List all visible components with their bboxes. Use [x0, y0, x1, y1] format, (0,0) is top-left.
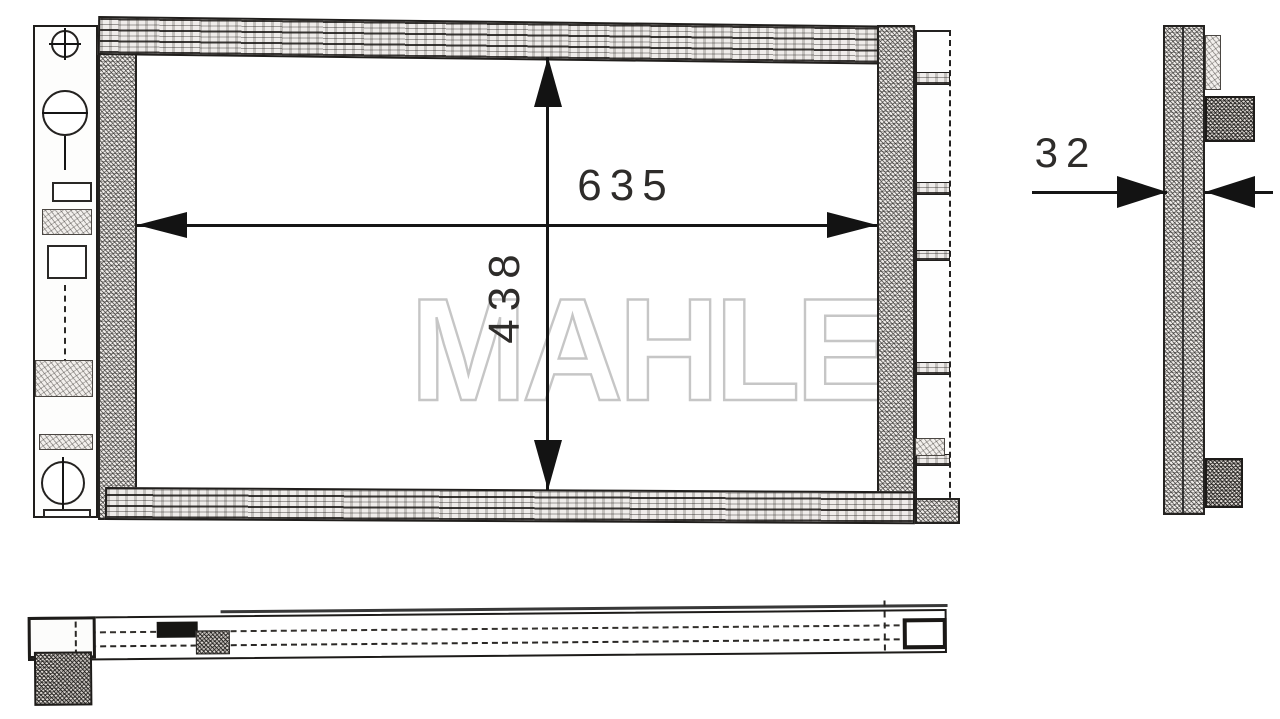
left-tank — [33, 25, 98, 518]
cap-cross-horizontal — [49, 43, 81, 45]
dim-depth-label: 32 — [1026, 132, 1106, 174]
core-left-edge — [98, 20, 137, 520]
technical-drawing-scene: MAHLE — [0, 0, 1280, 719]
core-top-bar — [98, 16, 915, 65]
neck-stem-line — [64, 136, 66, 170]
right-tank-divider-4 — [916, 362, 950, 375]
dim-width-arrow-right-icon — [827, 212, 877, 238]
front-right-fitting — [915, 438, 945, 456]
dim-height-arrow-down-icon — [534, 440, 562, 490]
dim-depth-arrow-right-icon — [1117, 176, 1167, 208]
tank-segment-b — [42, 209, 92, 235]
dim-depth-arrow-left-icon — [1205, 176, 1255, 208]
side-bottom-foot — [1205, 458, 1243, 508]
front-mount-foot — [915, 498, 960, 524]
dim-height-line — [546, 57, 549, 490]
dim-width-label: 635 — [566, 164, 686, 208]
bottom-center-dash — [884, 600, 886, 650]
right-tank-divider-1 — [916, 72, 950, 85]
bottom-outlet-stub — [34, 651, 92, 706]
tank-segment-a — [52, 182, 92, 202]
left-block-dash — [75, 622, 77, 656]
tank-segment-c — [47, 245, 87, 279]
bottom-circle-line — [62, 457, 64, 509]
neck-diameter-line — [42, 112, 88, 114]
bottom-view — [26, 598, 957, 716]
bottom-strip-line-2 — [40, 638, 930, 648]
right-tank-divider-2 — [916, 182, 950, 195]
side-center-line — [1182, 27, 1184, 513]
side-core-strip — [1163, 25, 1205, 515]
side-top-lug — [1205, 35, 1221, 90]
side-view — [1160, 22, 1270, 518]
bottom-right-end-cap — [903, 618, 947, 649]
side-inlet-stub — [1205, 96, 1255, 142]
tank-segment-d — [35, 360, 93, 397]
bottom-fitting-detail — [196, 630, 230, 654]
dim-width-arrow-left-icon — [137, 212, 187, 238]
tank-centerline-dash — [64, 285, 66, 365]
dim-height-arrow-up-icon — [534, 57, 562, 107]
tank-bottom-segment — [43, 509, 91, 518]
bottom-dark-fitting — [157, 622, 198, 638]
tank-segment-e — [39, 434, 93, 450]
core-bottom-bar — [105, 487, 915, 524]
dim-height-label: 438 — [483, 225, 531, 365]
core-right-edge — [877, 25, 915, 518]
right-tank-divider-3 — [916, 250, 950, 261]
dim-width-line — [137, 224, 877, 227]
